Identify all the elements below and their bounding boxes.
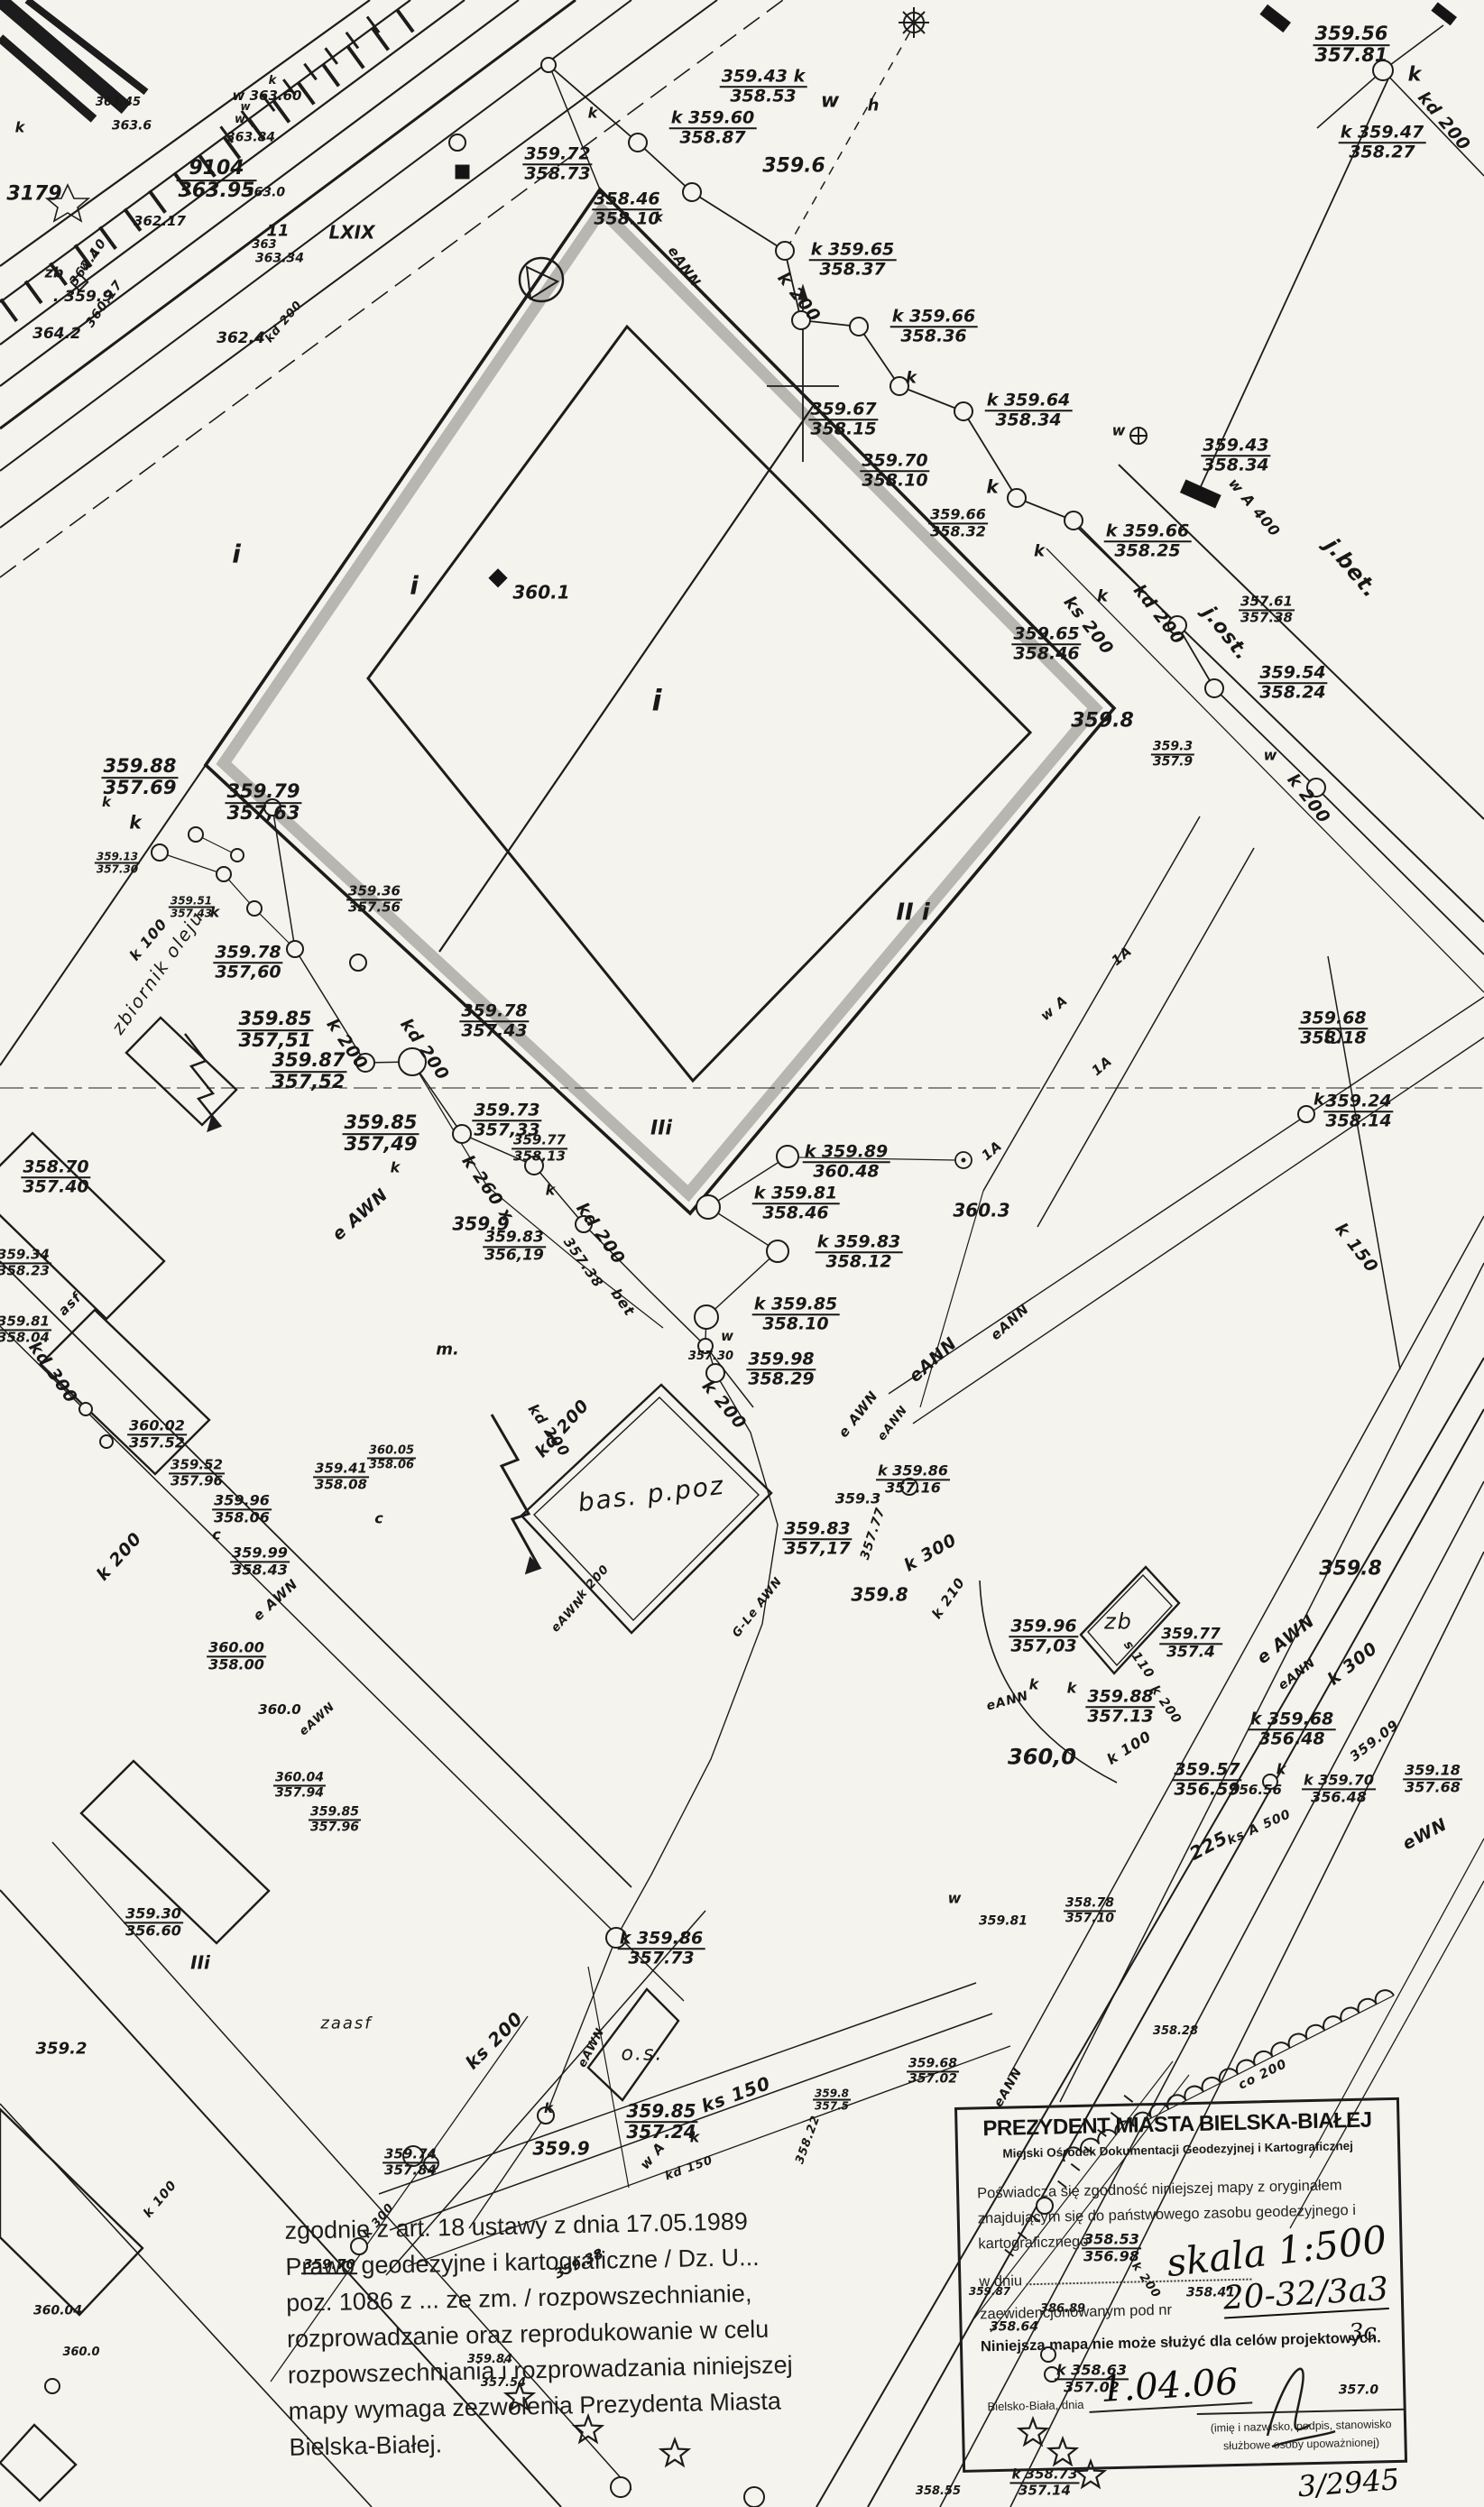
map-label: 359.96 357,03 [1009,1618,1078,1655]
elevation-top: 359.52 [169,1458,225,1474]
stamp-title: PREZYDENT MIASTA BIELSKA-BIAŁEJ [957,2107,1397,2143]
elevation-top: 359.96 [1009,1618,1078,1637]
elevation-bottom: 357,52 [270,1073,346,1092]
map-label: 363.34 [253,253,306,266]
map-label: 359.41 358.08 [313,1461,369,1491]
map-label: 358.46 358.10 [592,190,661,228]
elevation-top: k 359.47 [1339,124,1426,143]
map-label: k [1275,1763,1288,1778]
wall-hatch-icon [1260,5,1290,32]
wall-hatch-icon [1432,3,1456,25]
map-label: 358.55 [914,2485,963,2498]
elevation-bottom: 357.24 [624,2123,697,2142]
copyright-note: zgodnie z art. 18 ustawy z dnia 17.05.19… [284,2200,885,2466]
elevation-bottom: 358.87 [669,129,757,147]
map-label: i [408,572,420,598]
elevation-bottom: 358,13 [512,1149,567,1164]
elevation-top: 360.0 [256,1703,302,1718]
elevation-bottom: 358.06 [212,1510,272,1525]
elevation-top: 359.3 [834,1492,883,1507]
elevation-top: 359.41 [313,1461,369,1478]
elevation-top: k 359.86 [618,1930,705,1949]
map-label: IIi [189,1954,212,1973]
elevation-top: 363.84 [225,132,277,145]
map-label: m. [434,1342,461,1359]
elevation-bottom: 356.60 [124,1923,183,1939]
elevation-top: k [984,478,1000,497]
map-label: 360.1 [511,584,571,603]
map-label: o.s. [620,2045,666,2066]
elevation-top: 363.45 [94,97,143,109]
wall-hatch-icon [1181,480,1221,508]
map-label: zb [1102,1611,1135,1634]
elevation-top: LXIX [327,224,376,243]
stamp-city-date-label: Bielsko-Biała, dnia [987,2398,1083,2413]
map-label: 359.66 358.32 [928,507,988,539]
map-label: k [586,106,600,122]
streetlamp-icon [899,7,929,38]
elevation-bottom: 357.52 [127,1435,187,1451]
elevation-top: 360.00 [207,1640,266,1657]
elevation-bottom: 356,19 [483,1248,546,1264]
elevation-top: 359.79 [225,782,301,804]
elevation-bottom: 358.06 [367,1459,416,1471]
map-label: k [542,2102,555,2116]
elevation-top: k 359.85 [752,1295,840,1315]
map-label: k 359.65 358.37 [809,241,897,279]
elevation-top: k [586,106,600,122]
elevation-bottom: 358.29 [746,1370,816,1388]
map-label: 359.34 358.23 [0,1248,51,1277]
map-label: 359.77 358,13 [512,1133,567,1163]
stamp-date-handwriting: 1.04.06 [1087,2361,1252,2413]
elevation-top: 362.4 [215,331,267,347]
map-label: zb [43,266,66,281]
map-label: 359.83 357,17 [782,1520,852,1558]
elevation-top: 363.0 [244,187,287,200]
map-label: 363.84 [225,132,277,145]
map-label: k [1065,1682,1079,1697]
map-label: c [373,1512,384,1527]
elevation-top: k 359.86 [876,1463,950,1480]
elevation-top: 356.56 [1228,1783,1284,1798]
map-label: w [1262,749,1279,764]
elevation-bottom: 358.27 [1339,143,1426,161]
map-label: i [650,686,664,715]
map-label: 359.83 356,19 [483,1230,546,1263]
map-label: 359.8 [849,1586,909,1605]
elevation-bottom: 358.53 [720,88,807,106]
map-label: 359.72 358.73 [522,145,592,183]
elevation-top: 359.43 [1201,437,1270,456]
stamp-registry-field: zaewidencjonowanym pod nr [980,2302,1172,2324]
elevation-bottom: 357.69 [101,779,178,798]
elevation-top: 360.04 [32,2305,84,2318]
map-label: k 359.86 357.73 [618,1930,705,1968]
elevation-top: k [1095,589,1110,606]
elevation-top: k 359.89 [803,1143,890,1163]
elevation-top: 359.85 [236,1009,313,1031]
elevation-top: 358.70 [21,1158,90,1178]
map-label: 359.3 [834,1492,883,1507]
signature-caption: służbowe osoby upoważnionej) [1188,2436,1414,2454]
map-label: 362.17 [132,215,188,229]
map-label: 360.3 [951,1202,1011,1221]
map-label: 359.3 357.9 [1151,740,1194,768]
map-label: . 359.9 [51,290,115,306]
elevation-bottom: 358.73 [522,165,592,183]
map-label: 359.43 k 358.53 [720,68,807,106]
elevation-top: IIi [189,1954,212,1973]
map-label: 359.68 358.18 [1298,1009,1368,1047]
map-label: 364.2 [31,327,83,343]
elevation-top: 363.6 [110,120,153,134]
elevation-top: i [408,572,420,598]
lightning-bolt-icon [185,1034,220,1130]
elevation-top: k [904,371,918,388]
elevation-top: k [544,1184,558,1199]
map-label: 359.8 357.5 [813,2088,851,2113]
map-label: 359.30 356.60 [124,1906,183,1938]
point-symbol-icon [955,1152,972,1168]
map-label: 359.36 357.56 [346,884,402,914]
elevation-top: 359.36 [346,884,402,900]
map-label: k [1312,1092,1326,1110]
elevation-top: k [127,814,143,833]
map-label: 359.65 358.46 [1011,625,1081,663]
elevation-top: 359.72 [522,145,592,165]
elevation-top: k 359.83 [816,1233,903,1253]
elevation-top: k [267,75,279,88]
map-label: 360.05 358.06 [367,1444,416,1470]
certification-stamp: PREZYDENT MIASTA BIELSKA-BIAŁEJ Miejski … [954,2097,1407,2473]
elevation-top: 363.34 [253,253,306,266]
elevation-top: 359.30 [124,1906,183,1923]
elevation-top: 360.0 [60,2346,101,2359]
elevation-top: 359.70 [860,452,929,472]
map-label: k [127,814,143,833]
elevation-top: 359.68 [1298,1009,1368,1029]
elevation-bottom: 358.10 [592,210,661,228]
elevation-top: 359.83 [483,1230,546,1248]
elevation-top: 359.9 [530,2140,591,2159]
elevation-top: 359.88 [1085,1688,1155,1708]
elevation-top: IIi [649,1120,674,1140]
map-label: 359.74 357.84 [383,2147,438,2177]
map-label: k [267,75,279,88]
map-label: 359.56 357.81 [1313,24,1389,66]
map-label: 360.02 357.52 [127,1418,187,1450]
elevation-bottom: 357,63 [225,804,301,824]
map-label: k [1095,589,1110,606]
elevation-top: 359.57 [1172,1761,1241,1781]
map-label: k [1406,66,1424,87]
elevation-bottom: 356.48 [1302,1790,1376,1805]
map-label: II i [894,900,931,925]
elevation-top: k [1406,66,1424,87]
map-label: 359.70 358.10 [860,452,929,490]
map-label: 358.70 357.40 [21,1158,90,1196]
elevation-top: 359.98 [746,1350,816,1370]
elevation-top: k [542,2102,555,2116]
elevation-top: 359.87 [270,1051,346,1073]
elevation-top: 359.8 [849,1586,909,1605]
elevation-top: 360.1 [511,584,571,603]
map-label: k [544,1184,558,1199]
map-label: k [100,796,113,810]
elevation-bottom: 358.14 [1323,1112,1393,1130]
elevation-top: i [230,540,243,567]
elevation-bottom: 357,60 [213,963,282,982]
elevation-top: 359.68 [907,2057,959,2072]
elevation-top: k [389,1161,402,1176]
elevation-top: k [1312,1092,1326,1110]
map-label: k 359.60 358.87 [669,109,757,147]
map-label: k 359.81 358.46 [752,1184,840,1222]
elevation-top: o.s. [620,2045,666,2066]
map-label: 359.24 358.14 [1323,1092,1393,1130]
elevation-top: k [1065,1682,1079,1697]
stamp-body-line: kartograficznego [978,2234,1088,2254]
elevation-top: 359.74 [383,2147,438,2163]
elevation-bottom: 358.15 [808,420,878,438]
elevation-bottom: 357.68 [1403,1780,1462,1795]
map-label: 359.88 357.13 [1085,1688,1155,1726]
elevation-top: 358.28 [1151,2025,1200,2038]
map-label: 358.28 [1151,2025,1200,2038]
map-label: 360,0 [1006,1747,1078,1769]
stamp-subtitle: Miejski Ośrodek Dokumentacji Geodezyjnej… [958,2138,1397,2161]
map-label: 359.8 [1317,1560,1384,1581]
elevation-top: 359.99 [230,1545,290,1562]
elevation-bottom: 356.48 [1249,1730,1336,1748]
elevation-top: w [238,101,252,112]
map-label: k 359.66 358.25 [1104,522,1192,560]
elevation-top: zaasf [318,2016,373,2033]
elevation-top: 357.30 [687,1350,735,1363]
map-label: 359.96 358.06 [212,1493,272,1525]
elevation-top: m. [434,1342,461,1359]
elevation-top: 359.65 [1011,625,1081,645]
elevation-bottom: 358.32 [928,524,988,539]
map-label: IIi [649,1120,674,1140]
signature-caption: (imię i nazwisko, podpis, stanowisko [1188,2418,1414,2436]
elevation-top: k 359.70 [1302,1773,1376,1790]
elevation-top: zb [1102,1611,1135,1634]
map-label: k 359.68 356.48 [1249,1710,1336,1748]
elevation-bottom: 358.18 [1298,1029,1368,1047]
elevation-top: 359.77 [1159,1627,1222,1645]
elevation-top: k 359.66 [890,308,978,327]
map-label: k 359.83 358.12 [816,1233,903,1271]
elevation-top: zb [43,266,66,281]
elevation-bottom: 358.46 [1011,645,1081,663]
elevation-bottom: 358.25 [1104,542,1192,560]
elevation-top: k 359.64 [985,392,1073,411]
map-label: 359.79 357,63 [225,782,301,824]
elevation-top: II i [894,900,931,925]
signature-line [1197,2409,1405,2415]
elevation-top: h [866,98,881,115]
elevation-bottom: 357.73 [618,1949,705,1968]
map-label: 363.6 [110,120,153,134]
elevation-bottom: 357.9 [1151,755,1194,769]
elevation-top: 358.55 [914,2485,963,2498]
elevation-bottom: 357.81 [1313,46,1389,66]
elevation-top: 359.85 [624,2102,697,2123]
elevation-bottom: 357.96 [309,1820,361,1834]
map-label: 359.2 [34,2042,89,2059]
elevation-top: 359.34 [0,1248,51,1264]
map-label: 359.85 357,49 [342,1113,419,1155]
elevation-top: 359.77 [512,1133,567,1149]
elevation-top: 363 [250,239,278,252]
elevation-top: 362.17 [132,215,188,229]
elevation-top: 359.54 [1258,664,1327,684]
elevation-top: 359.73 [472,1101,541,1121]
map-label: k [1032,544,1046,561]
elevation-bottom: 357.43 [169,908,214,919]
elevation-top: 357.61 [1239,594,1295,611]
elevation-top: k 359.65 [809,241,897,261]
map-label: 359.6 [760,157,827,178]
valve-icon [1130,428,1147,444]
elevation-top: 360.04 [273,1771,326,1786]
map-label: 359.43 358.34 [1201,437,1270,475]
elevation-bottom: 358.43 [230,1562,290,1578]
map-label: 359.87 357,52 [270,1051,346,1092]
elevation-top: k 359.68 [1249,1710,1336,1730]
map-label: 360.04 [32,2305,84,2318]
elevation-top: 359.3 [1151,740,1194,755]
map-label: k 358.73 357.14 [1009,2467,1079,2497]
map-label: 359.54 358.24 [1258,664,1327,702]
elevation-top: 359.2 [34,2042,89,2059]
map-label: w [719,1330,735,1344]
map-label: w [233,114,247,126]
map-label: 363.45 [94,97,143,109]
map-label: 359.13 357.30 [95,852,140,876]
elevation-top: 359.51 [169,896,214,908]
elevation-top: 358.46 [592,190,661,210]
elevation-top: 359.8 [1069,712,1136,733]
lightning-bolt-icon [492,1415,539,1572]
map-label: 359.67 358.15 [808,401,878,438]
map-label: 3179 [5,185,63,206]
elevation-bottom: 358.10 [752,1315,840,1333]
map-label: w [946,1892,963,1907]
map-label: 362.4 [215,331,267,347]
elevation-bottom: 357.02 [907,2072,959,2086]
map-label: 359.51 357.43 [169,896,214,920]
map-label: zaasf [318,2016,373,2033]
elevation-bottom: 357.5 [813,2101,851,2112]
map-label: 359.8 [1069,712,1136,733]
map-label: k 359.64 358.34 [985,392,1073,429]
map-label: k 359.86 357.16 [876,1463,950,1495]
elevation-bottom: 360.48 [803,1163,890,1181]
map-label: k 359.89 360.48 [803,1143,890,1181]
map-label: 358.78 357.10 [1064,1896,1116,1924]
elevation-top: 359.81 [977,1915,1029,1929]
elevation-top: k [14,121,27,136]
map-label: 359.85 357,51 [236,1009,313,1051]
map-label: 359.9 [530,2140,591,2159]
map-label: k [984,478,1000,497]
elevation-bottom: 357.4 [1159,1645,1222,1661]
elevation-top: 359.56 [1313,24,1389,46]
elevation-top: 364.2 [31,327,83,343]
elevation-bottom: 358.34 [1201,456,1270,475]
elevation-top: c [210,1528,222,1544]
elevation-top: w [946,1892,963,1907]
elevation-bottom: 358.37 [809,261,897,279]
elevation-bottom: 358.00 [207,1657,266,1673]
elevation-top: 359.78 [213,944,282,963]
elevation-top: k [688,2131,702,2146]
elevation-bottom: 358.36 [890,327,978,346]
elevation-top: 9104 [177,159,257,181]
elevation-top: 358.78 [1064,1896,1116,1912]
elevation-top: 359.8 [1317,1560,1384,1581]
elevation-bottom: 357.96 [169,1474,225,1489]
map-label: w [1111,424,1128,439]
map-label: k 359.47 358.27 [1339,124,1426,161]
elevation-top: 359.6 [760,157,827,178]
elevation-top: w [719,1330,735,1344]
elevation-bottom: 358.24 [1258,684,1327,702]
map-label: w [238,101,252,112]
elevation-top: 359.85 [342,1113,419,1135]
map-label: 360.0 [256,1703,302,1718]
elevation-bottom: 357,49 [342,1135,419,1155]
elevation-top: 359.96 [212,1493,272,1510]
elevation-bottom: 357.13 [1085,1708,1155,1726]
map-label: 359.85 357.24 [624,2102,697,2142]
elevation-top: . 359.9 [51,290,115,306]
elevation-top: 360.02 [127,1418,187,1435]
map-label: 359.81 358.04 [0,1314,51,1344]
map-label: k [688,2131,702,2146]
map-label: LXIX [327,224,376,243]
map-label: 356.56 [1228,1783,1284,1798]
map-label: 359.78 357,60 [213,944,282,982]
map-label: h [866,98,881,115]
elevation-top: 359.8 [813,2088,851,2101]
map-label: k [389,1161,402,1176]
map-label: 360.04 357.94 [273,1771,326,1799]
map-label: 357.61 357.38 [1239,594,1295,624]
map-label: 359.88 357.69 [101,757,178,798]
elevation-top: 359.67 [808,401,878,420]
elevation-top: 3179 [5,185,63,206]
map-label: 359.78 357.43 [459,1002,529,1040]
elevation-top: 359.78 [459,1002,529,1022]
map-label: 360.0 [60,2346,101,2359]
elevation-top: w [819,92,841,113]
survey-map-page: 359.56 357.81 k 359.47 358.27 kd 200 k 3… [0,0,1484,2507]
elevation-bottom: 358.08 [313,1478,369,1492]
map-label: 359.68 357.02 [907,2057,959,2085]
elevation-top: 359.43 k [720,68,807,88]
map-label: 363.0 [244,187,287,200]
elevation-bottom: 357.38 [1239,611,1295,625]
map-label: 359.81 [977,1915,1029,1929]
elevation-top: c [373,1512,384,1527]
map-label: k [1028,1678,1041,1693]
map-label: 359.77 357.4 [1159,1627,1222,1660]
elevation-top: k 359.66 [1104,522,1192,542]
